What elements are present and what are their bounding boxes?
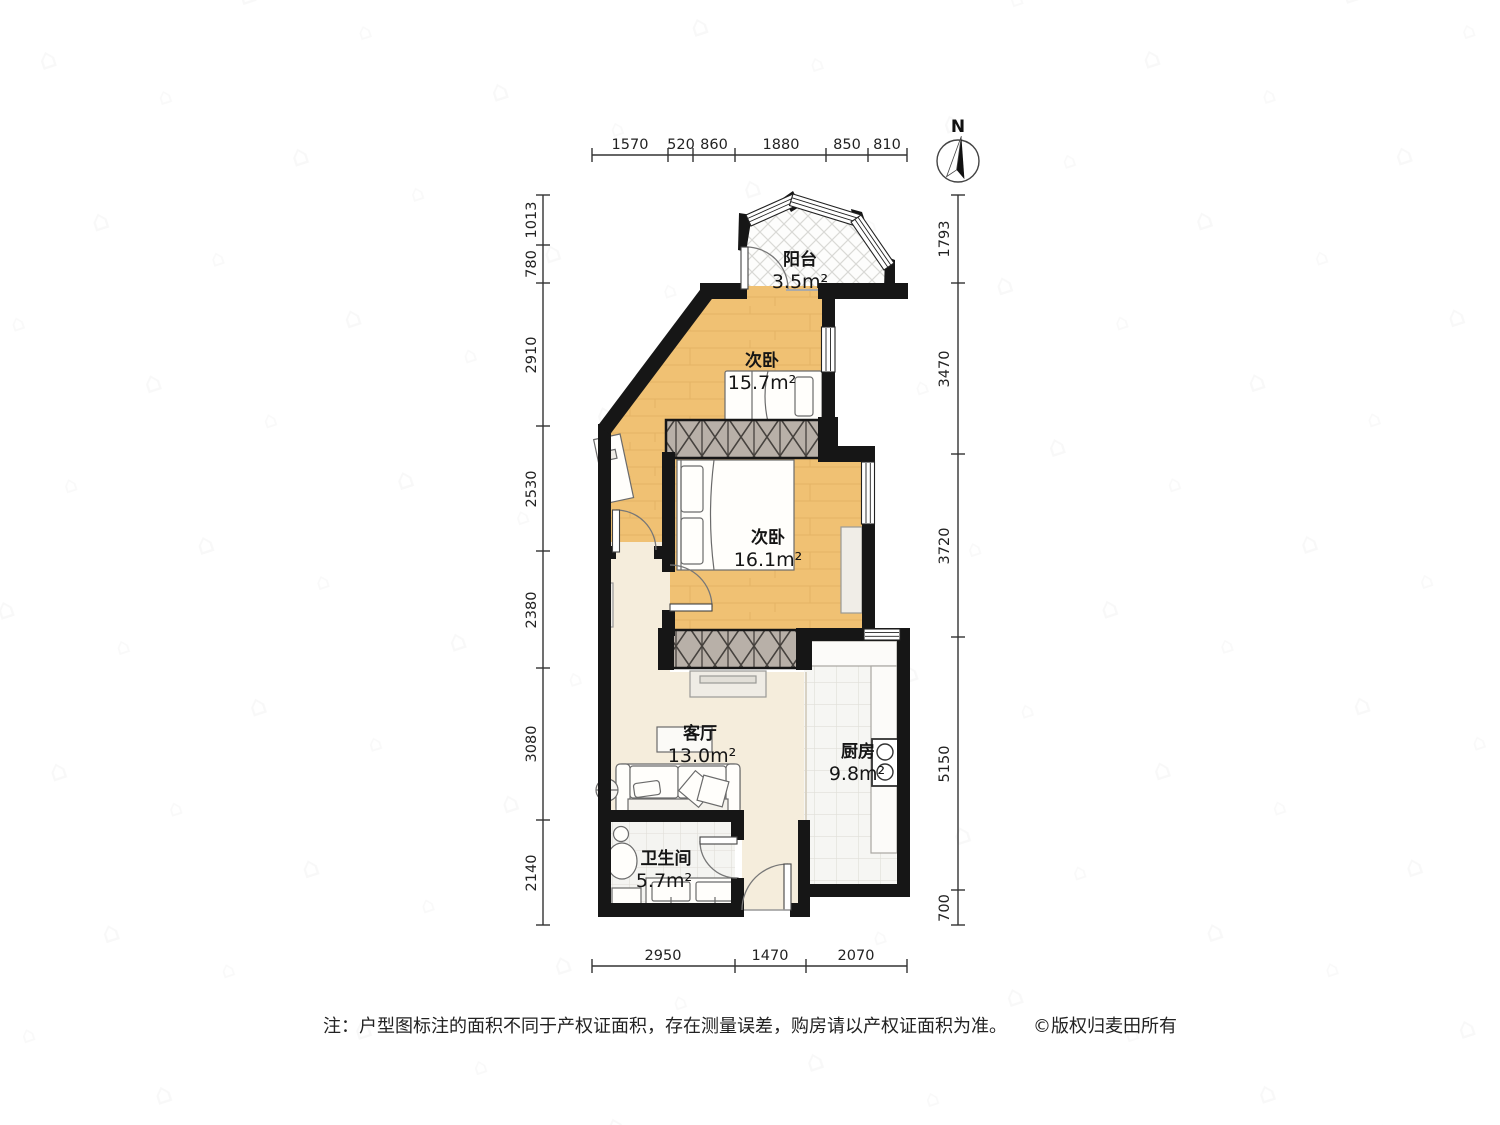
footer-copyright: ©版权归麦田所有: [1033, 1016, 1177, 1037]
label-bedroom1-area: 15.7m²: [728, 372, 796, 394]
label-living-area: 13.0m²: [668, 745, 736, 767]
label-living-name: 客厅: [682, 723, 717, 744]
window-kitchen: [864, 629, 900, 640]
floorplan-svg: ⌂ ⌂: [0, 0, 1500, 1125]
dim-top-2: 860: [700, 137, 728, 153]
dim-top-4: 850: [833, 137, 861, 153]
dim-top-3: 1880: [763, 137, 800, 153]
dim-right-1: 3470: [937, 351, 953, 388]
wardrobe-1: [666, 420, 822, 458]
sofa: [616, 764, 740, 814]
label-kitchen-name: 厨房: [841, 741, 875, 762]
tv-bench: [690, 671, 766, 697]
label-bedroom2-area: 16.1m²: [734, 549, 802, 571]
label-kitchen-area: 9.8m²: [829, 763, 885, 785]
label-balcony-area: 3.5m²: [772, 271, 828, 293]
dim-left-5: 3080: [524, 726, 540, 763]
compass-label: N: [951, 117, 965, 137]
label-balcony-name: 阳台: [783, 249, 817, 270]
dresser: [841, 527, 862, 613]
dim-right-3: 5150: [937, 746, 953, 783]
floorplan-page: ⌂ ⌂: [0, 0, 1500, 1125]
dim-top-1: 520: [667, 137, 695, 153]
dim-right-0: 1793: [937, 221, 953, 258]
dim-right-2: 3720: [937, 528, 953, 565]
dim-bottom-1: 1470: [752, 948, 789, 964]
dim-bottom-0: 2950: [645, 948, 682, 964]
footer: 注：户型图标注的面积不同于产权证面积，存在测量误差，购房请以产权证面积为准。©版…: [0, 1012, 1500, 1038]
dim-left-0: 1013: [524, 202, 540, 239]
dim-top-0: 1570: [612, 137, 649, 153]
wardrobe-2: [668, 630, 800, 668]
dim-left-1: 780: [524, 250, 540, 278]
dim-top-5: 810: [873, 137, 901, 153]
label-bathroom-area: 5.7m²: [636, 870, 692, 892]
dim-left-4: 2380: [524, 592, 540, 629]
dim-left-6: 2140: [524, 855, 540, 892]
footer-note: 注：户型图标注的面积不同于产权证面积，存在测量误差，购房请以产权证面积为准。: [323, 1016, 1007, 1037]
dim-left-3: 2530: [524, 471, 540, 508]
label-bedroom1-name: 次卧: [745, 350, 779, 371]
window-bedroom2: [862, 462, 875, 524]
window-bedroom1: [822, 327, 836, 372]
dim-left-2: 2910: [524, 337, 540, 374]
dim-right-4: 700: [937, 894, 953, 922]
label-bedroom2-name: 次卧: [751, 527, 785, 548]
label-bathroom-name: 卫生间: [641, 848, 692, 869]
dim-bottom-2: 2070: [838, 948, 875, 964]
